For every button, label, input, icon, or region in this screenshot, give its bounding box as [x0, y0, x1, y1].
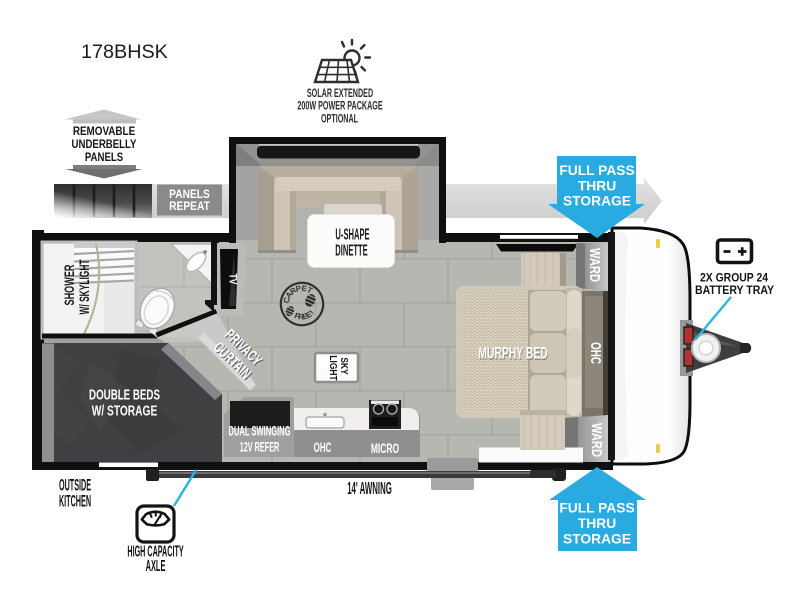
- svg-text:FULL PASS: FULL PASS: [559, 501, 634, 516]
- svg-text:12V REFER: 12V REFER: [240, 440, 280, 455]
- svg-text:FULL PASS: FULL PASS: [559, 163, 634, 178]
- svg-text:WARD: WARD: [587, 248, 604, 282]
- svg-text:REMOVABLE: REMOVABLE: [73, 125, 135, 138]
- svg-text:REPEAT: REPEAT: [169, 200, 210, 213]
- svg-text:SHOWER: SHOWER: [61, 264, 78, 305]
- svg-text:OPTIONAL: OPTIONAL: [321, 113, 358, 126]
- svg-text:MICRO: MICRO: [371, 442, 399, 456]
- svg-text:2X GROUP 24: 2X GROUP 24: [700, 272, 769, 285]
- svg-text:14' AWNING: 14' AWNING: [347, 479, 392, 498]
- svg-text:200W POWER PACKAGE: 200W POWER PACKAGE: [297, 100, 383, 113]
- svg-text:WARD: WARD: [589, 423, 606, 457]
- svg-text:178BHSK: 178BHSK: [81, 41, 168, 63]
- svg-text:THRU: THRU: [578, 179, 616, 194]
- svg-text:DUAL SWINGING: DUAL SWINGING: [228, 424, 290, 439]
- svg-text:TV: TV: [226, 274, 238, 285]
- svg-text:STORAGE: STORAGE: [563, 532, 631, 547]
- svg-text:UNDERBELLY: UNDERBELLY: [72, 138, 138, 151]
- svg-text:SOLAR EXTENDED: SOLAR EXTENDED: [307, 87, 373, 100]
- svg-text:BATTERY TRAY: BATTERY TRAY: [695, 284, 774, 297]
- svg-text:W/ STORAGE: W/ STORAGE: [92, 401, 158, 419]
- svg-text:LIGHT: LIGHT: [327, 355, 339, 380]
- svg-text:W/ SKYLIGHT: W/ SKYLIGHT: [78, 259, 93, 314]
- svg-text:DINETTE: DINETTE: [335, 242, 367, 260]
- svg-text:STORAGE: STORAGE: [563, 194, 631, 209]
- svg-text:KITCHEN: KITCHEN: [59, 491, 91, 511]
- svg-text:PANELS: PANELS: [85, 151, 123, 164]
- svg-text:OHC: OHC: [587, 342, 603, 364]
- svg-text:OHC: OHC: [314, 441, 332, 456]
- svg-text:AXLE: AXLE: [146, 557, 166, 575]
- svg-text:THRU: THRU: [578, 516, 616, 531]
- svg-text:MURPHY BED: MURPHY BED: [478, 344, 548, 362]
